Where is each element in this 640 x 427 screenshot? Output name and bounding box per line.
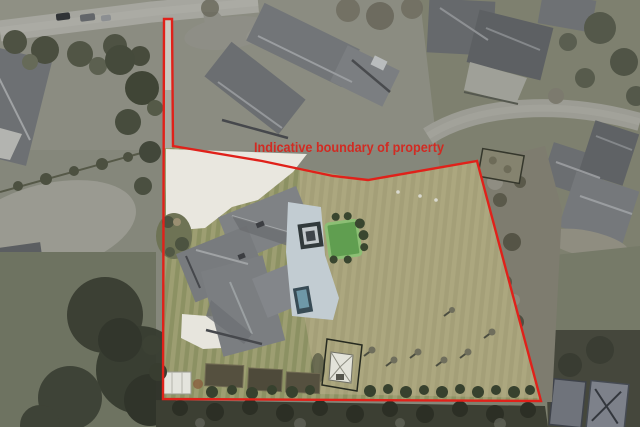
aerial-photo: Indicative boundary of property <box>0 0 640 427</box>
boundary-label: Indicative boundary of property <box>254 140 444 155</box>
aerial-photo-canvas: Indicative boundary of property <box>0 0 640 427</box>
bottom-right-field <box>545 330 640 427</box>
access-strip-lower <box>165 90 173 148</box>
spa-area <box>297 221 323 249</box>
